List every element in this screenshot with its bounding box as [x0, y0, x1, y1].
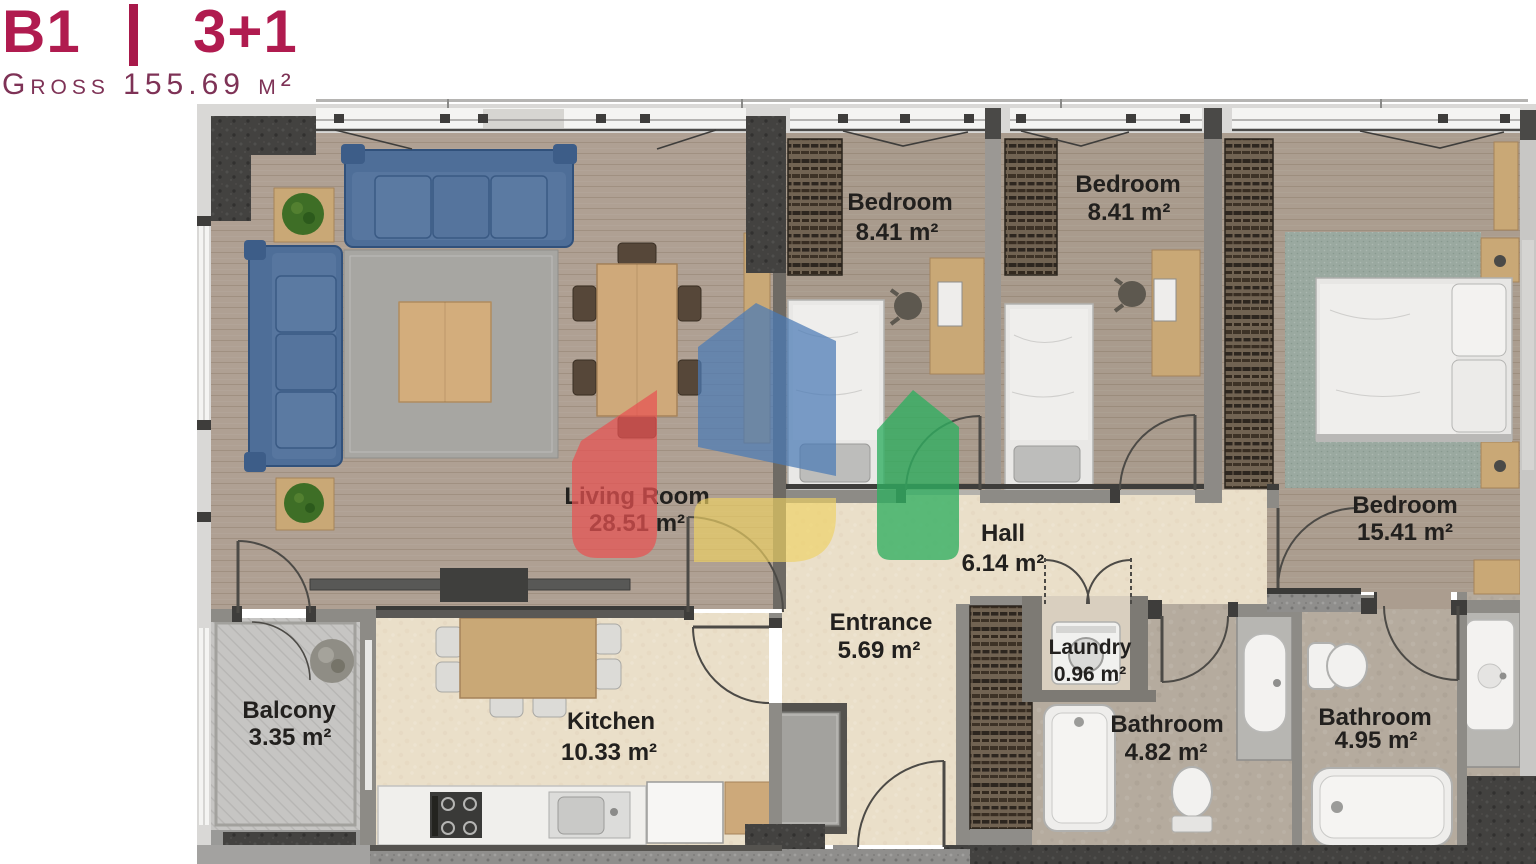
svg-text:Bathroom: Bathroom: [1110, 711, 1223, 738]
svg-text:B1: B1: [2, 0, 81, 65]
svg-text:6.14 m²: 6.14 m²: [962, 550, 1045, 577]
svg-text:5.69 m²: 5.69 m²: [838, 637, 921, 664]
svg-text:Hall: Hall: [981, 520, 1025, 547]
svg-text:Kitchen: Kitchen: [567, 708, 655, 735]
svg-text:15.41 m²: 15.41 m²: [1357, 519, 1453, 546]
svg-text:10.33 m²: 10.33 m²: [561, 739, 657, 766]
svg-text:3+1: 3+1: [193, 0, 298, 65]
svg-text:Balcony: Balcony: [242, 697, 336, 724]
svg-text:0.96 m²: 0.96 m²: [1054, 663, 1126, 686]
svg-text:Bedroom: Bedroom: [1075, 171, 1180, 198]
svg-text:8.41 m²: 8.41 m²: [1088, 199, 1171, 226]
svg-text:4.82 m²: 4.82 m²: [1125, 739, 1208, 766]
svg-text:3.35 m²: 3.35 m²: [249, 724, 332, 751]
svg-text:Entrance: Entrance: [830, 609, 933, 636]
svg-text:Bedroom: Bedroom: [847, 189, 952, 216]
svg-text:Laundry: Laundry: [1049, 636, 1132, 659]
svg-text:Gross 155.69 m²: Gross 155.69 m²: [2, 68, 296, 101]
svg-text:8.41 m²: 8.41 m²: [856, 219, 939, 246]
svg-text:4.95 m²: 4.95 m²: [1335, 727, 1418, 754]
svg-text:Bedroom: Bedroom: [1352, 492, 1457, 519]
